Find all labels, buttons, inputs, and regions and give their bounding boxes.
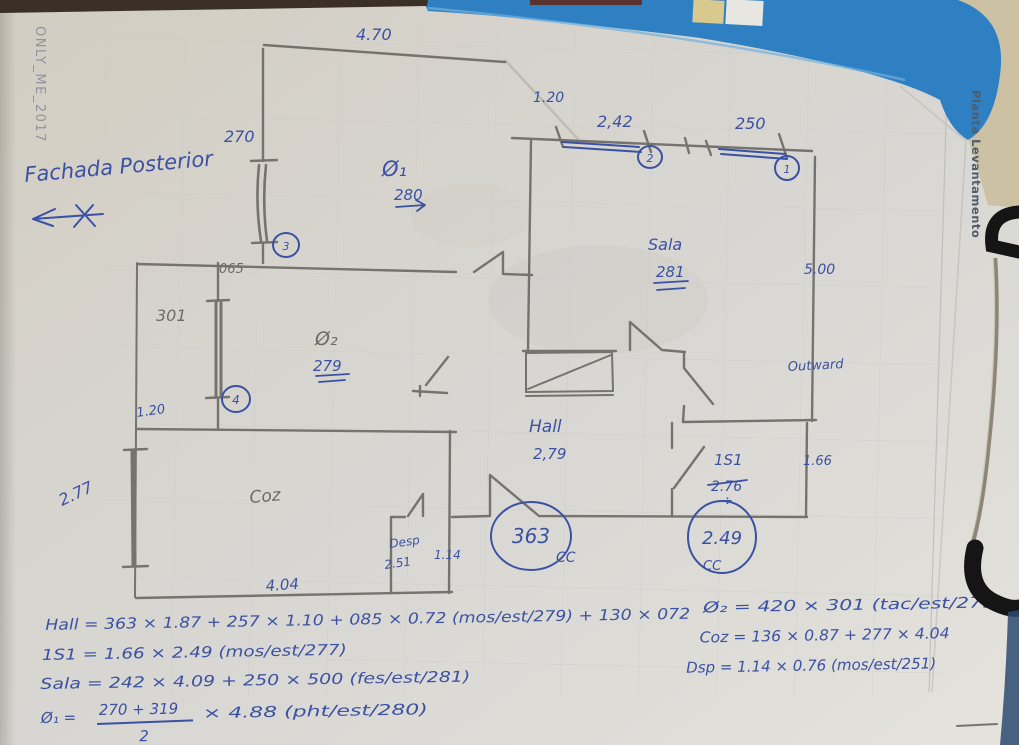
room-q1-label: Ø₁ <box>381 157 407 181</box>
dim-sala-depth: 5.00 <box>804 262 835 278</box>
circled-1: 1 <box>784 163 791 176</box>
wall-coz-separator <box>449 431 450 593</box>
dim-top-width: 4.70 <box>356 25 392 44</box>
watermark-text: ONLY_ME_2017 <box>32 26 47 143</box>
room-hall-label: Hall <box>529 417 562 437</box>
room-is1-height: 2.76 <box>711 479 742 495</box>
dim-desp-width: 1.14 <box>434 548 461 562</box>
formula-q1-numerator: 270 + 319 <box>99 700 179 719</box>
window-277 <box>133 452 134 565</box>
formula-q1-lead: Ø₁ = <box>40 708 76 727</box>
outward-note: Outward <box>787 357 844 375</box>
room-is1-label: 1S1 <box>714 451 743 469</box>
background-object-maroon <box>530 0 642 5</box>
hall-cc-note: CC <box>556 550 576 566</box>
dim-window-250: 250 <box>735 114 766 133</box>
background-object-yellow <box>692 0 724 24</box>
is1-depth-value: 2.49 <box>702 528 742 549</box>
room-q1-height: 280 <box>394 186 423 204</box>
room-sala-label: Sala <box>648 235 682 254</box>
dim-pass-width: 065 <box>219 262 244 277</box>
dim-window-301: 301 <box>156 306 187 325</box>
circled-4: 4 <box>232 393 240 407</box>
room-q2-label: Ø₂ <box>314 328 338 350</box>
dim-window-270: 270 <box>224 127 255 146</box>
dim-sala-offset: 1.20 <box>533 90 564 106</box>
is1-cc-note: CC <box>703 559 722 574</box>
paper-left-shadow <box>0 0 16 745</box>
sheet-side-label: Planta Levantamento <box>969 90 983 238</box>
hall-width-value: 363 <box>512 524 550 548</box>
room-is1-divide: ÷ <box>722 494 733 509</box>
room-coz-label: Coz <box>249 485 283 508</box>
circled-3: 3 <box>283 240 290 253</box>
circled-2: 2 <box>647 152 654 165</box>
dim-is1-width: 1.66 <box>803 454 832 469</box>
dim-coz-length: 4.04 <box>265 575 300 595</box>
background-object-white <box>725 0 763 26</box>
sketch-photo-svg: ONLY_ME_2017 Planta Levantamento <box>0 0 1019 745</box>
dim-window-242: 2,42 <box>597 112 633 131</box>
room-q2-height: 279 <box>313 357 342 375</box>
room-hall-height: 2,79 <box>533 445 566 463</box>
formula-q1-denominator: 2 <box>139 727 149 745</box>
room-sala-height: 281 <box>656 263 685 281</box>
photo-of-floorplan-sketch: ONLY_ME_2017 Planta Levantamento <box>0 0 1019 745</box>
